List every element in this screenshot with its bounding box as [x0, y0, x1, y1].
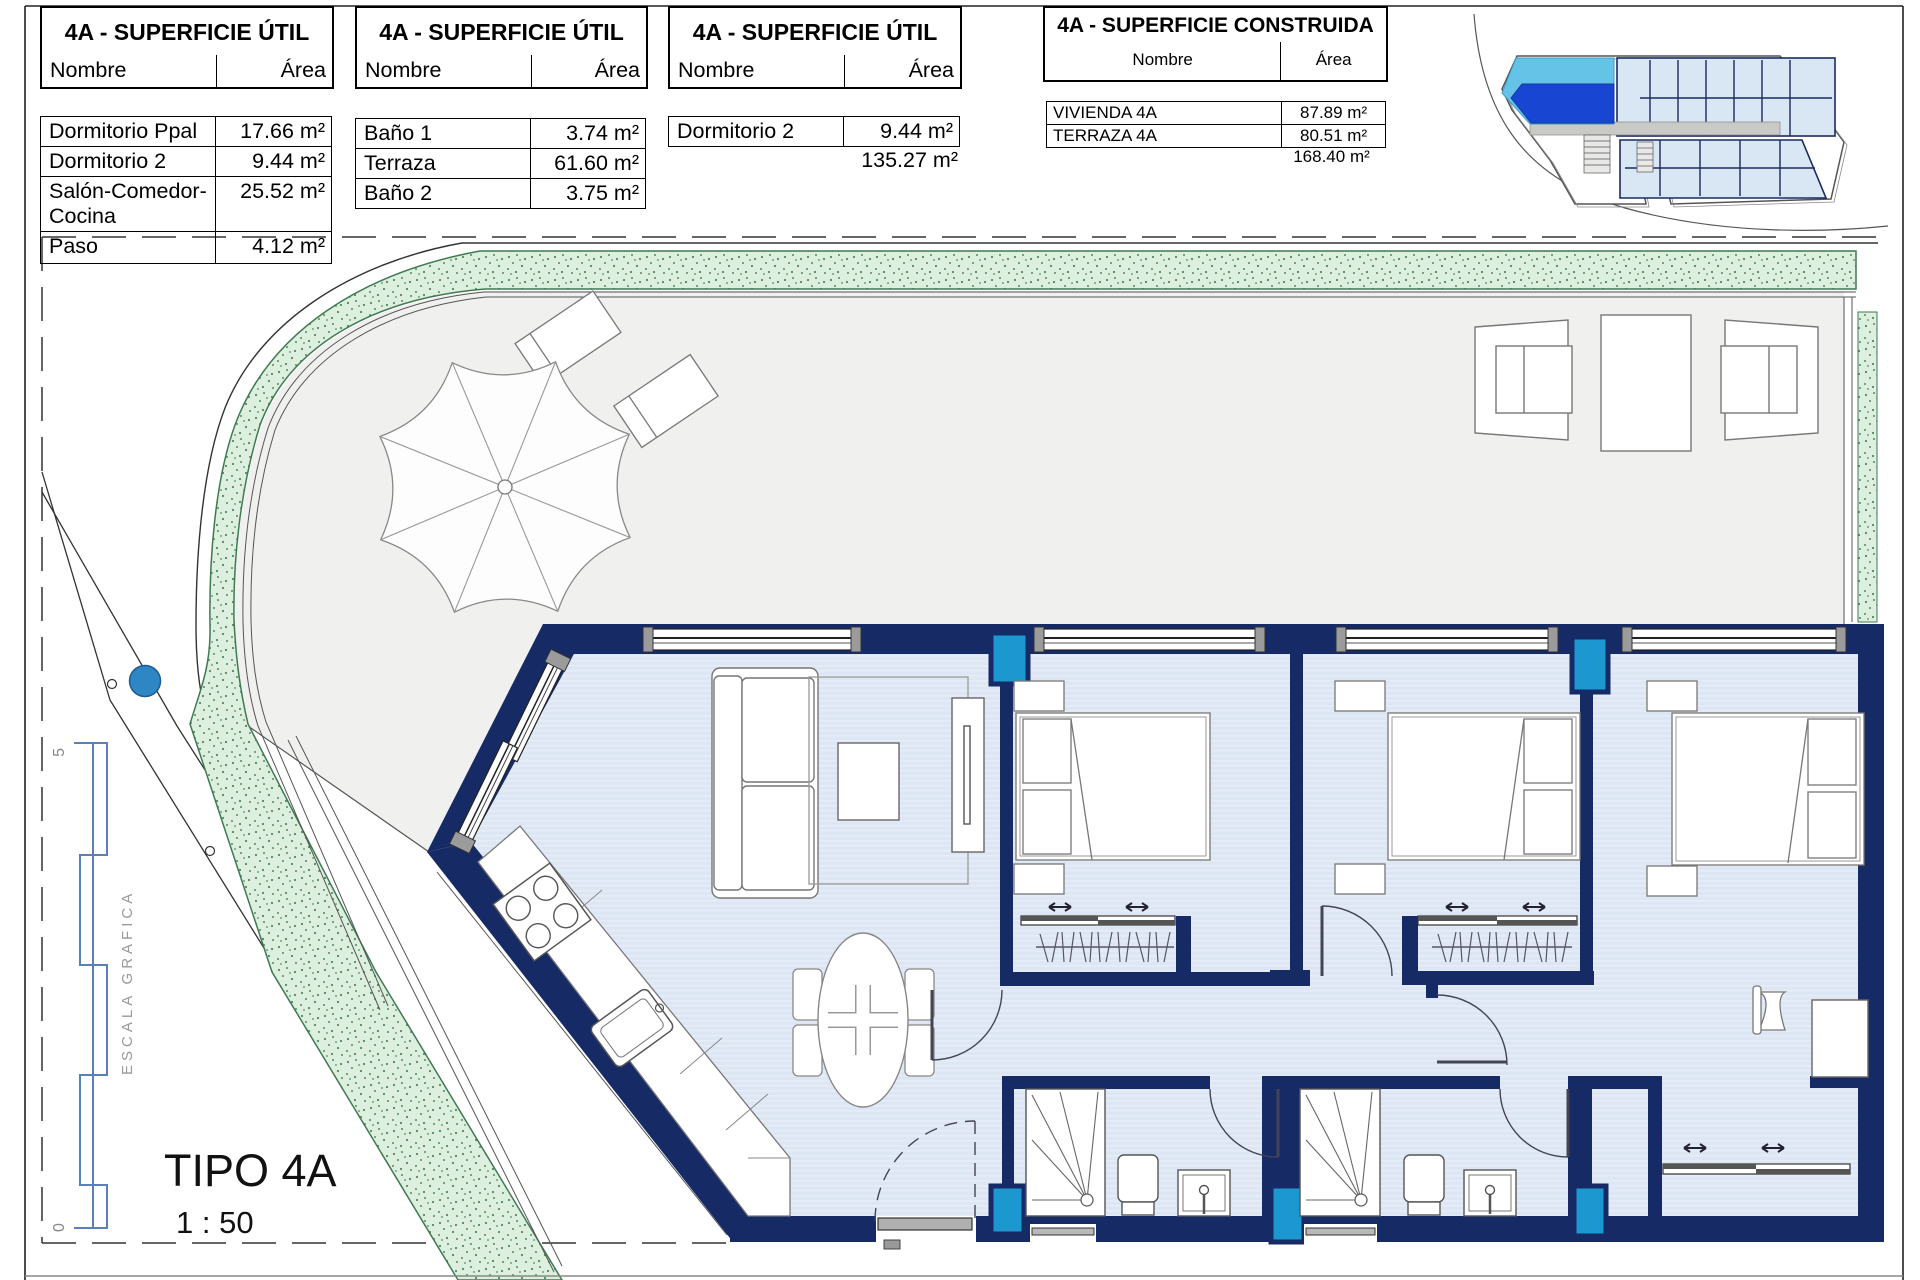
svg-text:1 : 50: 1 : 50: [176, 1205, 254, 1240]
svg-text:5: 5: [51, 748, 68, 757]
svg-text:TIPO 4A: TIPO 4A: [164, 1145, 337, 1196]
svg-text:0: 0: [51, 1223, 68, 1232]
svg-text:ESCALA GRAFICA: ESCALA GRAFICA: [119, 890, 136, 1075]
